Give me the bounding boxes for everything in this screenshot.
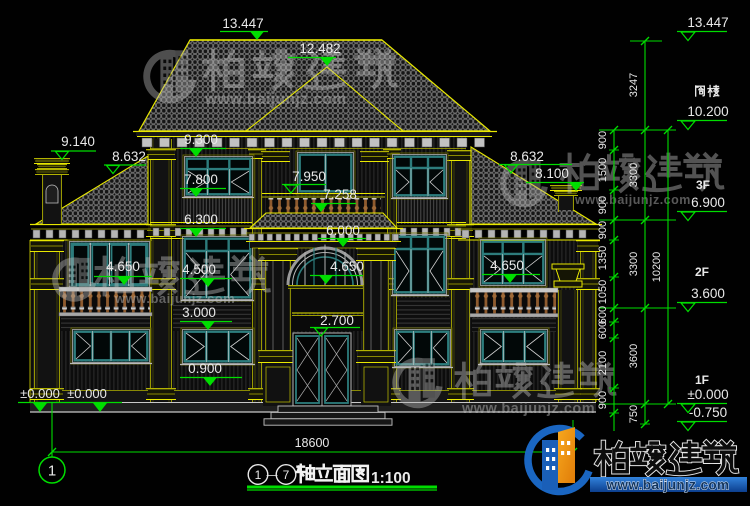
- svg-text:6.900: 6.900: [691, 195, 725, 210]
- svg-text:1: 1: [48, 463, 56, 480]
- svg-text:4.650: 4.650: [490, 258, 524, 273]
- svg-text:750: 750: [628, 405, 640, 423]
- svg-text:www.baijunjz.com: www.baijunjz.com: [114, 291, 235, 306]
- svg-text:3247: 3247: [628, 73, 640, 97]
- svg-text:8.100: 8.100: [535, 166, 569, 181]
- svg-text:8.632: 8.632: [112, 149, 146, 164]
- svg-text:1: 1: [255, 468, 262, 482]
- svg-text:900: 900: [597, 391, 609, 409]
- svg-text:10200: 10200: [651, 252, 663, 283]
- svg-text:900: 900: [597, 221, 609, 239]
- svg-text:12.482: 12.482: [299, 41, 340, 56]
- svg-text:±0.000: ±0.000: [67, 386, 107, 401]
- svg-text:3600: 3600: [628, 344, 640, 368]
- svg-text:6.000: 6.000: [326, 223, 360, 238]
- svg-text:-0.750: -0.750: [689, 405, 727, 420]
- svg-text:600: 600: [597, 321, 609, 339]
- svg-text:8.632: 8.632: [510, 149, 544, 164]
- svg-text:3300: 3300: [628, 163, 640, 187]
- svg-text:±0.000: ±0.000: [687, 387, 728, 402]
- svg-text:9.300: 9.300: [184, 132, 218, 147]
- svg-text:1500: 1500: [597, 158, 609, 182]
- svg-text:3F: 3F: [696, 178, 710, 192]
- svg-text:www.baijunjz.com: www.baijunjz.com: [204, 91, 347, 108]
- svg-text:7.258: 7.258: [323, 187, 357, 202]
- svg-text:7.800: 7.800: [184, 172, 218, 187]
- svg-text:18600: 18600: [295, 436, 330, 450]
- svg-text:www.baijunjz.com: www.baijunjz.com: [574, 193, 691, 207]
- svg-text:±0.000: ±0.000: [20, 386, 60, 401]
- svg-text:2100: 2100: [597, 351, 609, 375]
- svg-text:3300: 3300: [628, 252, 640, 276]
- svg-text:1:100: 1:100: [371, 470, 411, 487]
- svg-text:9.140: 9.140: [61, 134, 95, 149]
- svg-text:7: 7: [283, 468, 290, 482]
- svg-text:2F: 2F: [695, 265, 709, 279]
- svg-text:4.650: 4.650: [330, 259, 364, 274]
- svg-text:www.baijunjz.com: www.baijunjz.com: [606, 478, 730, 493]
- svg-text:1F: 1F: [695, 373, 709, 387]
- svg-text:0.900: 0.900: [188, 361, 222, 376]
- svg-text:www.baijunjz.com: www.baijunjz.com: [461, 401, 595, 417]
- svg-text:900: 900: [597, 131, 609, 149]
- svg-text:900: 900: [597, 196, 609, 214]
- svg-text:1350: 1350: [597, 246, 609, 270]
- svg-text:1050: 1050: [597, 280, 609, 304]
- svg-text:7.950: 7.950: [292, 169, 326, 184]
- svg-text:2.700: 2.700: [320, 313, 354, 328]
- svg-text:13.447: 13.447: [222, 16, 263, 31]
- svg-text:4.650: 4.650: [106, 259, 140, 274]
- svg-text:4.500: 4.500: [182, 262, 216, 277]
- svg-text:3.600: 3.600: [691, 286, 725, 301]
- svg-text:10.200: 10.200: [687, 104, 728, 119]
- svg-text:3.000: 3.000: [182, 305, 216, 320]
- svg-text:6.300: 6.300: [184, 212, 218, 227]
- svg-text:13.447: 13.447: [687, 15, 728, 30]
